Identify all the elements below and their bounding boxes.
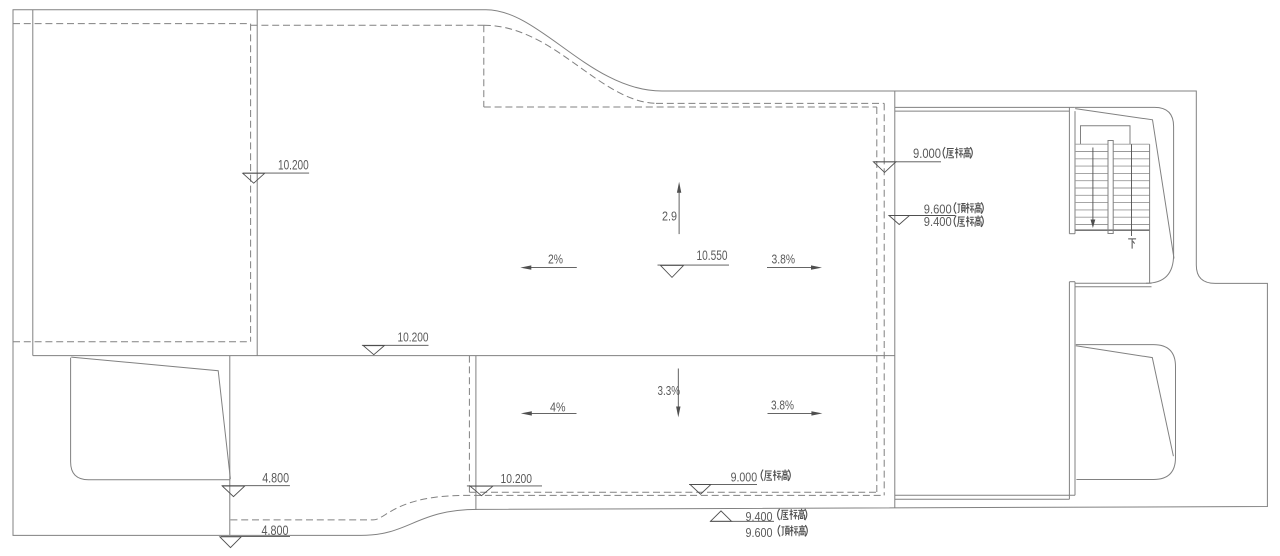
svg-text:4.800: 4.800	[262, 523, 289, 538]
svg-text:10.200: 10.200	[398, 329, 429, 344]
svg-text:9.000: 9.000	[731, 469, 758, 484]
svg-text:10.200: 10.200	[501, 471, 533, 486]
svg-text:2.9: 2.9	[662, 209, 677, 224]
svg-text:9.400: 9.400	[746, 509, 773, 524]
svg-text:2%: 2%	[548, 251, 563, 266]
svg-text:3.8%: 3.8%	[771, 397, 794, 412]
svg-text:9.600: 9.600	[746, 525, 773, 540]
svg-text:10.550: 10.550	[697, 248, 728, 264]
svg-text:9.000: 9.000	[913, 146, 941, 161]
svg-text:4.800: 4.800	[262, 470, 289, 485]
svg-text:9.400: 9.400	[924, 214, 952, 229]
svg-text:4%: 4%	[550, 399, 566, 414]
svg-text:10.200: 10.200	[278, 158, 309, 173]
svg-text:3.8%: 3.8%	[772, 251, 796, 266]
svg-text:3.3%: 3.3%	[658, 383, 681, 398]
